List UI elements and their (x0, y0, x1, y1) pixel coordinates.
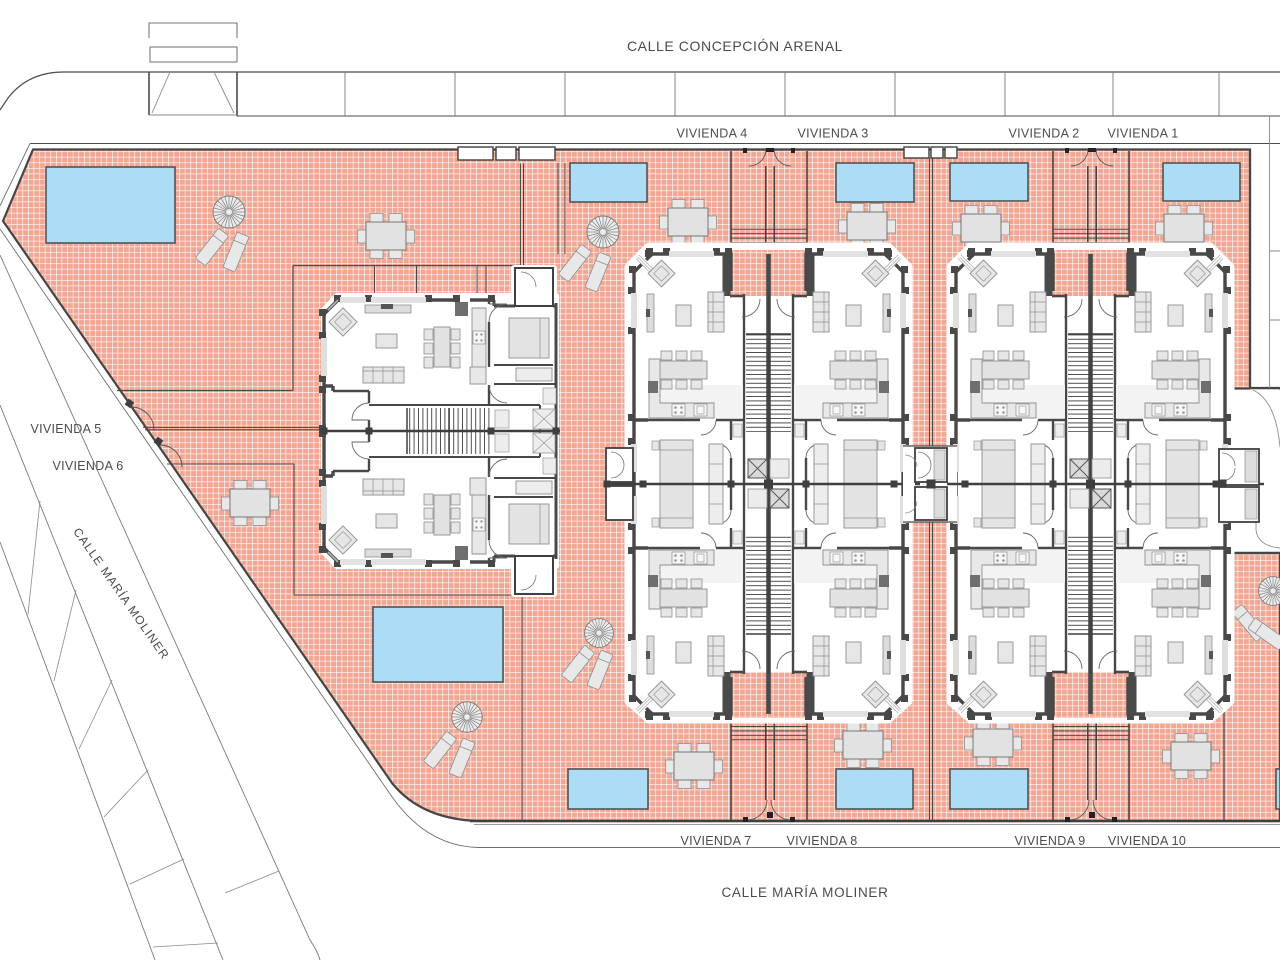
svg-text:VIVIENDA 6: VIVIENDA 6 (52, 459, 123, 473)
svg-text:CALLE CONCEPCIÓN ARENAL: CALLE CONCEPCIÓN ARENAL (627, 38, 843, 54)
svg-text:VIVIENDA 1: VIVIENDA 1 (1107, 127, 1178, 141)
svg-text:VIVIENDA 7: VIVIENDA 7 (680, 834, 751, 848)
svg-text:VIVIENDA 4: VIVIENDA 4 (676, 127, 747, 141)
svg-text:VIVIENDA 10: VIVIENDA 10 (1108, 834, 1186, 848)
svg-text:VIVIENDA 2: VIVIENDA 2 (1008, 127, 1079, 141)
svg-text:VIVIENDA 8: VIVIENDA 8 (786, 834, 857, 848)
svg-text:CALLE MARÍA MOLINER: CALLE MARÍA MOLINER (721, 885, 888, 900)
svg-text:VIVIENDA 9: VIVIENDA 9 (1014, 834, 1085, 848)
svg-text:VIVIENDA 5: VIVIENDA 5 (30, 422, 101, 436)
svg-text:VIVIENDA 3: VIVIENDA 3 (797, 127, 868, 141)
